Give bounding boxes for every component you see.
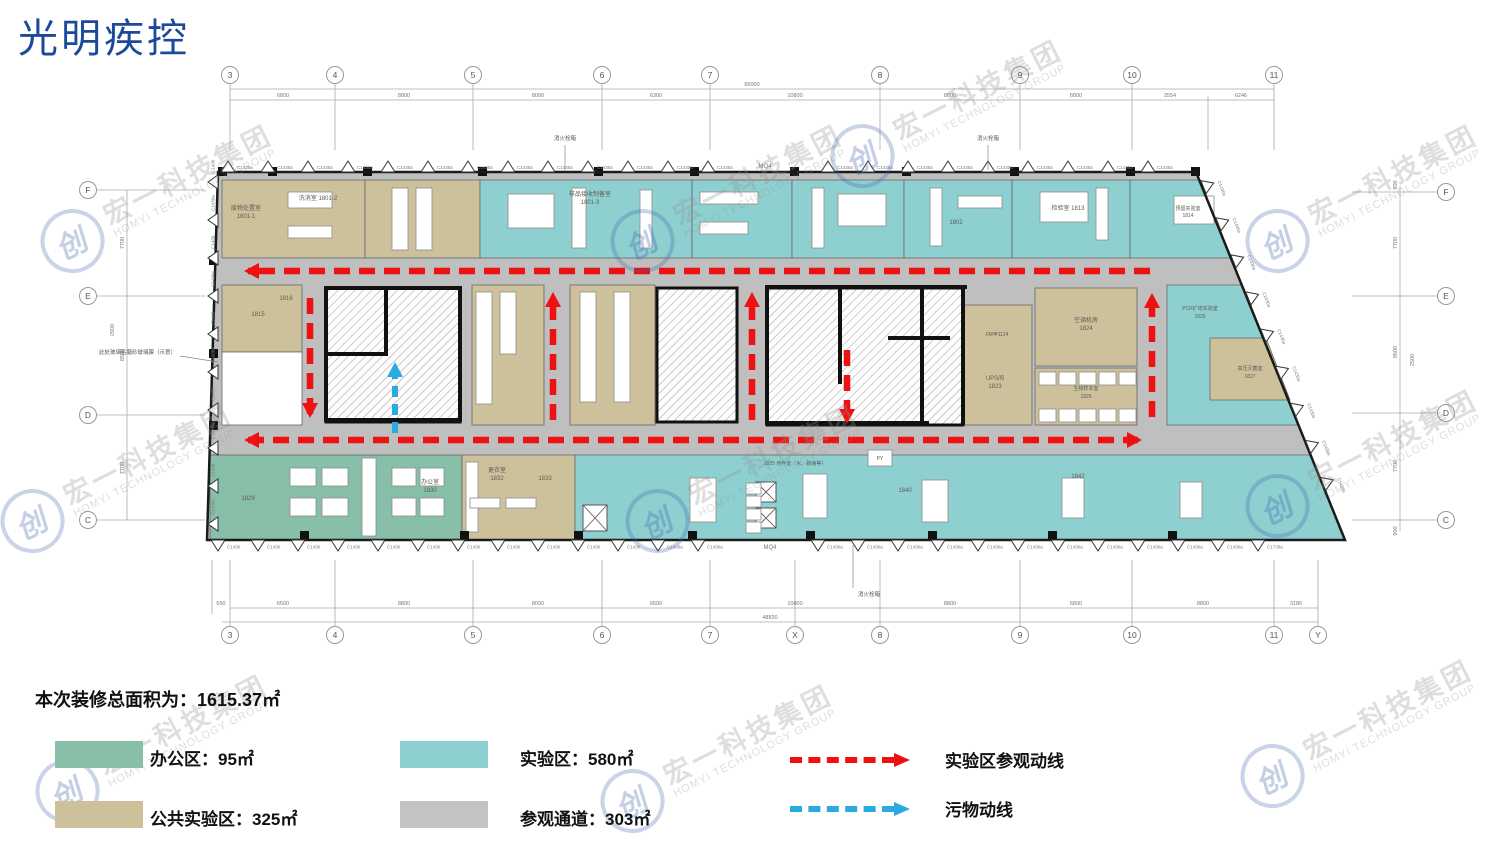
svg-text:C1430a: C1430a: [597, 165, 613, 170]
grid-bubble: 10: [1124, 67, 1141, 84]
svg-text:4: 4: [333, 630, 338, 640]
svg-text:C1430a: C1430a: [1291, 366, 1302, 383]
svg-text:Y: Y: [1315, 630, 1321, 640]
svg-text:C1430: C1430: [587, 545, 601, 550]
svg-text:2554: 2554: [1164, 93, 1176, 99]
svg-text:C1430: C1430: [211, 235, 216, 249]
svg-text:FM甲1124: FM甲1124: [986, 332, 1009, 338]
svg-text:C1430a: C1430a: [277, 165, 293, 170]
grid-bubble: 8: [872, 627, 889, 644]
svg-text:C1430a: C1430a: [637, 165, 653, 170]
svg-text:C1430a: C1430a: [1027, 545, 1043, 550]
svg-text:C1430a: C1430a: [1321, 440, 1332, 457]
svg-text:10800: 10800: [787, 601, 802, 607]
svg-text:10: 10: [1127, 70, 1137, 80]
svg-text:8500: 8500: [1393, 346, 1399, 358]
svg-text:C1430a: C1430a: [1261, 291, 1272, 308]
svg-text:1824: 1824: [1079, 326, 1093, 332]
svg-text:C1430a: C1430a: [867, 545, 883, 550]
grid-bubble: 5: [465, 627, 482, 644]
svg-text:8800: 8800: [398, 93, 410, 99]
floor-plan-drawing: C1430aC1430aC1430aC1430aC1430aC1430aC143…: [0, 0, 1496, 680]
svg-text:C1430a: C1430a: [211, 347, 216, 363]
svg-text:10800: 10800: [787, 93, 802, 99]
svg-text:C1430a: C1430a: [917, 165, 933, 170]
svg-text:1842: 1842: [1071, 474, 1085, 480]
svg-text:C1430a: C1430a: [1037, 165, 1053, 170]
svg-text:预留实验室: 预留实验室: [1175, 205, 1200, 212]
svg-text:C1430a: C1430a: [707, 545, 723, 550]
svg-text:C1430a: C1430a: [211, 195, 216, 211]
svg-text:C1430a: C1430a: [1187, 545, 1203, 550]
svg-text:2500: 2500: [1410, 354, 1416, 366]
svg-text:MQ4: MQ4: [758, 164, 772, 170]
svg-text:C1430a: C1430a: [1117, 165, 1133, 170]
svg-text:C1430a: C1430a: [1147, 545, 1163, 550]
svg-text:C1430a: C1430a: [1157, 165, 1173, 170]
red-route-arrow-sample: [790, 757, 894, 763]
svg-text:C1430a: C1430a: [1107, 545, 1123, 550]
svg-text:C1730a: C1730a: [1267, 545, 1283, 550]
page: { "title": "光明疾控", "summary": "本次装修总面积为：…: [0, 0, 1496, 853]
svg-text:C1430a: C1430a: [957, 165, 973, 170]
svg-text:8800: 8800: [944, 601, 956, 607]
svg-text:检验室 1813: 检验室 1813: [1051, 204, 1085, 212]
svg-text:7: 7: [708, 70, 713, 80]
svg-text:UPS间: UPS间: [986, 374, 1004, 382]
svg-text:1827: 1827: [1244, 374, 1255, 380]
svg-text:9: 9: [1018, 630, 1023, 640]
svg-text:PCR扩增实验室: PCR扩增实验室: [1182, 305, 1218, 312]
svg-text:7700: 7700: [1393, 460, 1399, 472]
svg-text:6: 6: [600, 70, 605, 80]
svg-text:C1430: C1430: [211, 387, 216, 401]
svg-text:C1430: C1430: [467, 545, 481, 550]
grid-bubble: C: [80, 512, 97, 529]
svg-text:C1430a: C1430a: [1276, 328, 1287, 345]
svg-text:消火栓箱: 消火栓箱: [858, 590, 881, 598]
grid-bubble: 3: [222, 627, 239, 644]
svg-text:1840: 1840: [898, 488, 912, 494]
svg-text:900: 900: [1393, 526, 1399, 535]
homyi-logo-icon: 创: [1230, 733, 1316, 819]
svg-text:1801-3: 1801-3: [581, 200, 600, 206]
grid-bubble: 6: [594, 627, 611, 644]
grid-bubble: 6: [594, 67, 611, 84]
svg-text:C1430: C1430: [267, 545, 281, 550]
grid-bubble: 8: [872, 67, 889, 84]
svg-text:900: 900: [1393, 180, 1399, 189]
svg-text:48830: 48830: [762, 615, 777, 621]
legend-label-visit-route: 实验区参观动线: [945, 747, 1064, 772]
svg-text:洗消室 1801-2: 洗消室 1801-2: [299, 194, 338, 202]
svg-text:C1430a: C1430a: [877, 165, 893, 170]
svg-text:65000: 65000: [744, 82, 759, 88]
svg-text:1829: 1829: [241, 496, 255, 502]
svg-text:8800: 8800: [944, 93, 956, 99]
svg-text:C1430a: C1430a: [211, 271, 216, 287]
svg-text:C: C: [85, 515, 91, 525]
svg-text:1825: 1825: [1080, 394, 1091, 400]
svg-text:空调机房: 空调机房: [1074, 316, 1098, 324]
homyi-logo-icon: 创: [590, 758, 676, 844]
total-area-text: 本次装修总面积为：1615.37㎡: [35, 686, 280, 712]
svg-text:1802: 1802: [949, 220, 963, 226]
svg-text:PY: PY: [877, 456, 884, 462]
svg-text:7: 7: [708, 630, 713, 640]
svg-text:6500: 6500: [277, 601, 289, 607]
svg-text:8: 8: [878, 70, 883, 80]
svg-text:C1430: C1430: [227, 545, 241, 550]
svg-text:11: 11: [1270, 70, 1279, 80]
svg-text:C1430a: C1430a: [397, 165, 413, 170]
svg-text:C1430a: C1430a: [1077, 165, 1093, 170]
svg-text:6246: 6246: [1235, 93, 1247, 99]
grid-bubble: 11: [1266, 627, 1283, 644]
svg-text:C1430a: C1430a: [211, 499, 216, 515]
svg-text:D: D: [85, 410, 91, 420]
svg-text:5: 5: [471, 70, 476, 80]
blue-route-arrow-sample: [790, 806, 894, 812]
grid-bubble: D: [1438, 405, 1455, 422]
grid-bubble: 7: [702, 627, 719, 644]
svg-text:C1430: C1430: [507, 545, 521, 550]
svg-text:C1430a: C1430a: [437, 165, 453, 170]
grid-bubble: 9: [1012, 627, 1029, 644]
svg-text:10: 10: [1127, 630, 1137, 640]
legend-swatch-office: [55, 741, 143, 768]
svg-text:C1430a: C1430a: [317, 165, 333, 170]
svg-text:6800: 6800: [277, 93, 289, 99]
svg-text:6800: 6800: [1070, 93, 1082, 99]
page-title: 光明疾控: [18, 6, 190, 64]
svg-text:C1430a: C1430a: [1231, 217, 1242, 234]
svg-text:8000: 8000: [532, 93, 544, 99]
svg-text:C1430a: C1430a: [677, 165, 693, 170]
svg-text:E: E: [1443, 291, 1449, 301]
svg-text:C1430a: C1430a: [517, 165, 533, 170]
legend-label-office: 办公区：95㎡: [150, 745, 254, 770]
svg-text:F: F: [85, 185, 90, 195]
svg-text:C1430: C1430: [387, 545, 401, 550]
svg-text:样品接收制备室: 样品接收制备室: [569, 190, 611, 198]
svg-text:1815: 1815: [251, 312, 265, 318]
svg-text:4: 4: [333, 70, 338, 80]
svg-text:MQ4: MQ4: [763, 545, 777, 551]
svg-text:8800: 8800: [1197, 601, 1209, 607]
svg-text:消火栓箱: 消火栓箱: [977, 134, 1000, 142]
svg-text:6800: 6800: [1070, 601, 1082, 607]
svg-text:办公室: 办公室: [421, 478, 439, 486]
legend-swatch-shared-lab: [55, 801, 143, 828]
svg-text:6: 6: [600, 630, 605, 640]
grid-bubble: 3: [222, 67, 239, 84]
grid-bubble: 9: [1012, 67, 1029, 84]
grid-bubble: 7: [702, 67, 719, 84]
svg-text:C1430: C1430: [307, 545, 321, 550]
grid-bubble: E: [1438, 288, 1455, 305]
svg-text:E: E: [85, 291, 91, 301]
svg-text:1823: 1823: [988, 384, 1002, 390]
svg-text:650: 650: [216, 601, 225, 607]
svg-text:C1430a: C1430a: [211, 423, 216, 439]
svg-text:7700: 7700: [120, 462, 126, 474]
svg-text:C1430: C1430: [547, 545, 561, 550]
svg-text:C1430a: C1430a: [1306, 403, 1317, 420]
svg-text:F: F: [1443, 187, 1448, 197]
svg-text:3180: 3180: [1290, 601, 1302, 607]
svg-text:C: C: [1443, 515, 1449, 525]
legend-label-corridor: 参观通道：303㎡: [520, 805, 650, 830]
watermark-en-text: HOMYI TECHNOLOGY GROUP: [1312, 681, 1483, 776]
svg-text:1801-1: 1801-1: [237, 214, 256, 220]
svg-text:6500: 6500: [650, 601, 662, 607]
legend-swatch-corridor: [400, 801, 488, 828]
svg-text:C1430a: C1430a: [237, 165, 253, 170]
svg-text:生物样本室: 生物样本室: [1073, 385, 1098, 392]
svg-text:X: X: [792, 630, 798, 640]
svg-text:C1430a: C1430a: [717, 165, 733, 170]
svg-text:C1430: C1430: [627, 545, 641, 550]
svg-text:1814: 1814: [1182, 213, 1193, 219]
watermark-cn-text: 宏一科技集团: [659, 681, 838, 791]
svg-text:高压灭菌室: 高压灭菌室: [1237, 365, 1262, 372]
svg-text:9: 9: [1018, 70, 1023, 80]
svg-text:2900: 2900: [110, 324, 116, 336]
watermark-en-text: HOMYI TECHNOLOGY GROUP: [672, 706, 843, 801]
svg-text:C1430a: C1430a: [1067, 545, 1083, 550]
svg-text:C1430a: C1430a: [947, 545, 963, 550]
grid-bubble: Y: [1310, 627, 1327, 644]
legend-label-waste-route: 污物动线: [945, 796, 1013, 821]
svg-text:C1430: C1430: [211, 311, 216, 325]
svg-text:7700: 7700: [1393, 237, 1399, 249]
svg-text:C1430a: C1430a: [907, 545, 923, 550]
svg-text:C1430a: C1430a: [987, 545, 1003, 550]
svg-text:C1430a: C1430a: [667, 545, 683, 550]
grid-bubble: F: [80, 182, 97, 199]
grid-bubble: 10: [1124, 627, 1141, 644]
grid-bubble: 4: [327, 67, 344, 84]
grid-bubble: 4: [327, 627, 344, 644]
svg-text:8000: 8000: [532, 601, 544, 607]
svg-text:5: 5: [471, 630, 476, 640]
svg-text:1835 培养室（水、致病等）: 1835 培养室（水、致病等）: [764, 460, 827, 467]
svg-text:D: D: [1443, 408, 1449, 418]
svg-text:C1430a: C1430a: [1216, 180, 1227, 197]
svg-text:C1430a: C1430a: [827, 545, 843, 550]
svg-text:消火栓箱: 消火栓箱: [554, 134, 577, 142]
svg-text:7700: 7700: [120, 237, 126, 249]
grid-bubble: C: [1438, 512, 1455, 529]
grid-bubble: F: [1438, 184, 1455, 201]
grid-bubble: X: [787, 627, 804, 644]
svg-text:C1430a: C1430a: [357, 165, 373, 170]
svg-text:1826: 1826: [1194, 314, 1205, 320]
grid-bubble: 5: [465, 67, 482, 84]
svg-text:C1430: C1430: [211, 159, 216, 173]
svg-text:C1430: C1430: [211, 463, 216, 477]
svg-text:C1430a: C1430a: [997, 165, 1013, 170]
svg-text:1816: 1816: [279, 296, 293, 302]
svg-text:C1430a: C1430a: [1227, 545, 1243, 550]
svg-text:此处玻璃贴磨砂玻璃膜（示意）: 此处玻璃贴磨砂玻璃膜（示意）: [99, 348, 176, 356]
legend-label-lab: 实验区：580㎡: [520, 745, 633, 770]
svg-text:更衣室: 更衣室: [488, 466, 506, 474]
svg-text:1833: 1833: [538, 476, 552, 482]
svg-text:C1430a: C1430a: [837, 165, 853, 170]
svg-text:3: 3: [228, 70, 233, 80]
grid-bubble: D: [80, 407, 97, 424]
legend-swatch-lab: [400, 741, 488, 768]
svg-text:11: 11: [1270, 630, 1279, 640]
grid-bubble: 11: [1266, 67, 1283, 84]
svg-text:C1430a: C1430a: [1246, 254, 1257, 271]
legend-label-shared-lab: 公共实验区：325㎡: [150, 805, 297, 830]
svg-text:3: 3: [228, 630, 233, 640]
svg-text:C1430: C1430: [347, 545, 361, 550]
svg-text:6300: 6300: [650, 93, 662, 99]
svg-text:1830: 1830: [423, 488, 437, 494]
svg-text:1832: 1832: [490, 476, 504, 482]
svg-text:C1430a: C1430a: [1336, 477, 1347, 494]
svg-text:8800: 8800: [398, 601, 410, 607]
svg-text:8: 8: [878, 630, 883, 640]
svg-text:废物处置室: 废物处置室: [231, 204, 261, 212]
svg-text:C1430a: C1430a: [477, 165, 493, 170]
grid-bubble: E: [80, 288, 97, 305]
svg-text:C1430: C1430: [427, 545, 441, 550]
